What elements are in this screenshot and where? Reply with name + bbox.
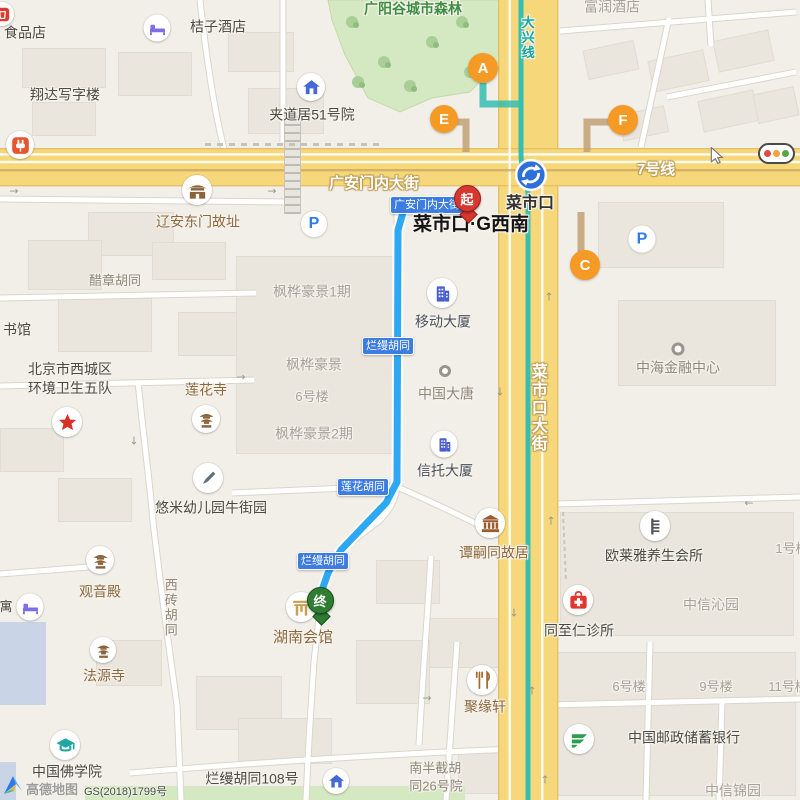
start-pin-head: 起 (454, 185, 481, 212)
end-pin-head: 终 (307, 587, 334, 614)
map-canvas[interactable]: 广安门内大街烂缦胡同莲花胡同烂缦胡同食品店桔子酒店翔达写字楼夹道居51号院广阳谷… (0, 0, 800, 800)
route-pins-layer: 起终 (0, 0, 800, 800)
